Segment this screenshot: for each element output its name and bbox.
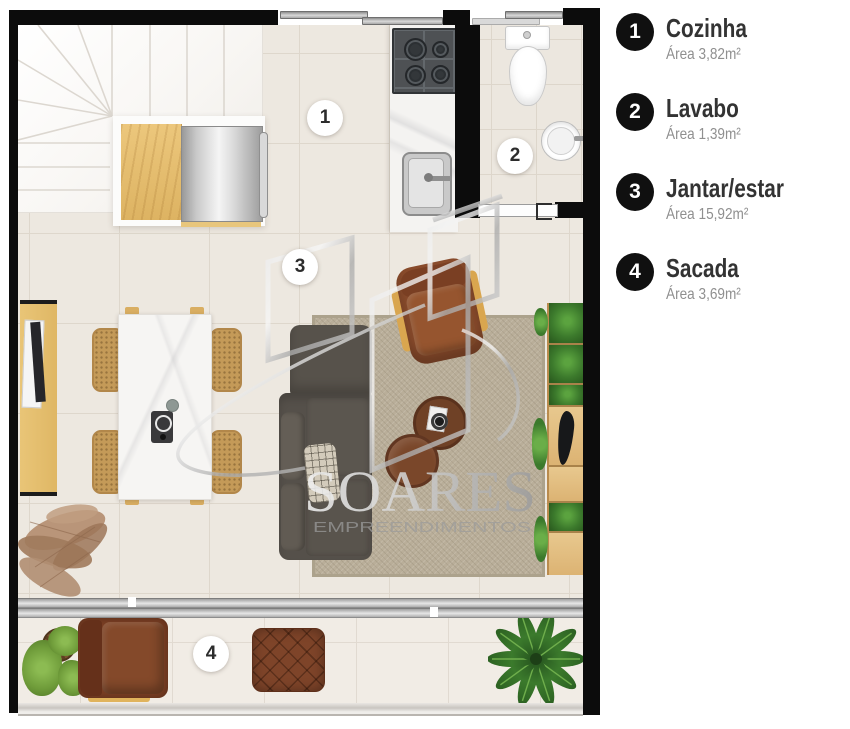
track-joint xyxy=(128,597,136,607)
sofa-back-cushion xyxy=(281,483,305,551)
sliding-door-track xyxy=(18,598,583,608)
legend-area: Área 15,92m² xyxy=(666,206,791,224)
legend-title: Sacada xyxy=(666,254,739,283)
legend-title: Cozinha xyxy=(666,14,747,43)
coffee-table-record xyxy=(431,413,448,430)
legend-text: Sacada Área 3,69m² xyxy=(666,253,757,304)
legend-title: Jantar/estar xyxy=(666,174,784,203)
kitchen-wood-cabinet xyxy=(121,124,182,220)
table-tray-item xyxy=(160,434,166,440)
legend-item-sacada: 4 Sacada Área 3,69m² xyxy=(616,253,757,304)
stove-burner xyxy=(431,65,450,84)
kitchen-window xyxy=(278,10,443,25)
dining-table xyxy=(118,314,212,500)
shelf-plant xyxy=(549,385,586,407)
stove-burner xyxy=(404,38,427,61)
legend-number: 2 xyxy=(629,100,641,124)
sliding-door-track xyxy=(18,608,583,618)
legend-number: 1 xyxy=(629,20,641,44)
floorplan-image: SOARES EMPREENDIMENTOS 1 2 3 4 1 Cozinha… xyxy=(0,0,850,729)
toilet-flush-button xyxy=(523,31,531,39)
shelf-plant xyxy=(549,303,586,345)
dining-chair xyxy=(210,328,242,392)
refrigerator xyxy=(181,126,263,222)
legend-area: Área 3,69m² xyxy=(666,286,743,304)
legend-item-lavabo: 2 Lavabo Área 1,39m² xyxy=(616,93,757,144)
legend-title: Lavabo xyxy=(666,94,739,123)
pampas-plant xyxy=(10,492,125,604)
bathroom-window xyxy=(470,10,563,25)
shelf-plant xyxy=(549,503,586,533)
track-joint xyxy=(430,607,438,617)
plant-leaves xyxy=(534,308,548,336)
bathroom-sink-bowl xyxy=(547,127,575,155)
window-pane xyxy=(280,11,368,19)
plant-shelf xyxy=(547,303,588,575)
armchair-back xyxy=(80,620,102,696)
legend-area: Área 3,82m² xyxy=(666,46,752,64)
bathroom-door-handle xyxy=(536,203,552,220)
balcony-railing xyxy=(18,703,583,716)
legend-number-circle: 3 xyxy=(616,173,654,211)
stove-burner xyxy=(432,41,449,58)
room-badge-lavabo: 2 xyxy=(497,138,533,174)
legend-text: Lavabo Área 1,39m² xyxy=(666,93,757,144)
balcony-armchair xyxy=(78,612,168,704)
badge-number: 2 xyxy=(510,145,521,167)
ottoman xyxy=(252,628,325,692)
moss-plant xyxy=(48,626,82,656)
badge-number: 3 xyxy=(295,256,306,278)
window-pane xyxy=(505,11,563,19)
sofa-pillow xyxy=(303,442,341,503)
wall xyxy=(9,10,278,25)
wall xyxy=(455,25,480,218)
badge-number: 4 xyxy=(206,643,217,665)
armchair-seat xyxy=(102,622,164,694)
wall xyxy=(443,10,470,25)
table-tray-plate xyxy=(155,415,172,432)
coffee-table-small xyxy=(385,434,439,488)
shelf-compartment xyxy=(549,467,586,503)
legend-number-circle: 1 xyxy=(616,13,654,51)
shelf-plant xyxy=(549,345,586,385)
sofa-chaise xyxy=(290,325,372,395)
refrigerator-handle xyxy=(259,132,268,218)
legend-text: Cozinha Área 3,82m² xyxy=(666,13,767,64)
legend-number-circle: 2 xyxy=(616,93,654,131)
window-pane xyxy=(362,17,443,25)
badge-number: 1 xyxy=(320,107,331,129)
balcony-plant xyxy=(488,612,584,706)
wall xyxy=(555,202,585,218)
plant-leaves xyxy=(534,516,548,562)
window-sill xyxy=(472,18,540,25)
room-badge-sacada: 4 xyxy=(193,636,229,672)
plant-leaves xyxy=(532,418,548,470)
kitchen-faucet-head xyxy=(424,173,433,182)
sofa-back-cushion xyxy=(281,412,305,480)
wall xyxy=(9,10,18,713)
room-badge-cozinha: 1 xyxy=(307,100,343,136)
kitchen-sink-basin xyxy=(408,158,444,208)
legend-number: 4 xyxy=(629,260,641,284)
stove-burner xyxy=(405,65,426,86)
room-badge-jantar-estar: 3 xyxy=(282,249,318,285)
dining-chair xyxy=(210,430,242,494)
stove-cooktop xyxy=(392,28,460,94)
legend-text: Jantar/estar Área 15,92m² xyxy=(666,173,813,224)
legend-number-circle: 4 xyxy=(616,253,654,291)
legend-item-jantar-estar: 3 Jantar/estar Área 15,92m² xyxy=(616,173,813,224)
legend-item-cozinha: 1 Cozinha Área 3,82m² xyxy=(616,13,767,64)
table-cup xyxy=(166,399,179,412)
armchair-cushion xyxy=(405,282,479,357)
wall xyxy=(583,8,600,715)
legend-number: 3 xyxy=(629,180,641,204)
shelf-compartment xyxy=(549,533,586,575)
legend-area: Área 1,39m² xyxy=(666,126,743,144)
